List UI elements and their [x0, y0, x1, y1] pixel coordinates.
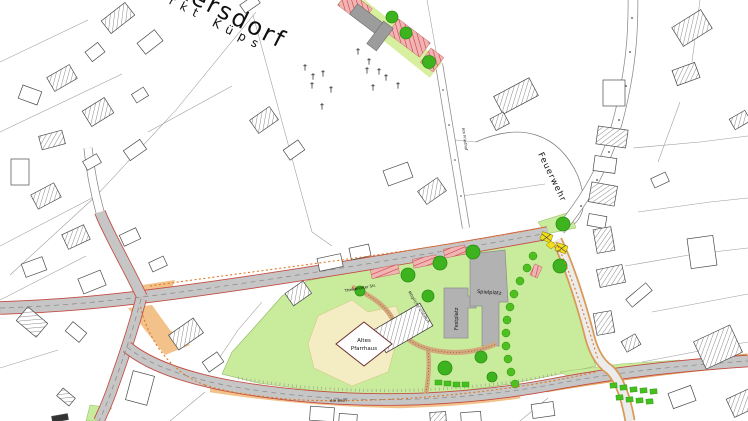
festplatz-label: Festplatz [454, 307, 460, 330]
building [125, 371, 154, 406]
bush-symbol [646, 399, 653, 405]
tree-symbol [422, 290, 434, 302]
building [131, 87, 148, 103]
grave-cross-symbol: † [303, 63, 307, 72]
building [593, 227, 615, 254]
hedge-symbol [504, 355, 512, 363]
tree-symbol [556, 217, 570, 231]
grave-cross-symbol: † [377, 67, 381, 76]
feuerwehr-label: Feuerwehr [535, 151, 568, 204]
site-plan-svg: † † † † † † † † † † † † † Burkersdorf Ma… [0, 0, 748, 421]
building [137, 30, 163, 55]
grave-cross-symbol: † [356, 47, 360, 56]
building [531, 402, 555, 419]
bush-symbol [444, 381, 451, 386]
building [62, 225, 91, 250]
building [603, 80, 625, 106]
altes-pfarrhaus-label-line2: Pfarrhaus [351, 346, 377, 352]
tree-symbol [475, 351, 487, 363]
grave-cross-symbol: † [396, 81, 400, 90]
bush-symbol [636, 398, 643, 404]
hedge-symbol [516, 277, 524, 285]
tree-symbol [466, 245, 480, 259]
tree-symbol [433, 256, 447, 270]
hedge-symbol [507, 368, 515, 376]
grave-cross-symbol: † [329, 85, 333, 94]
building [593, 311, 615, 336]
building [101, 2, 134, 33]
hedge-symbol [502, 329, 510, 337]
building [65, 322, 87, 343]
bush-symbol [630, 387, 637, 393]
grave-cross-symbol: † [320, 102, 324, 111]
building [11, 159, 29, 185]
building [490, 112, 509, 131]
hedge-symbol [506, 303, 514, 311]
building [57, 388, 76, 406]
tree-symbol [553, 259, 567, 273]
building [668, 385, 696, 408]
building [587, 214, 607, 229]
building [310, 406, 335, 421]
building [82, 97, 114, 126]
road-cemetery-access [439, 64, 466, 228]
hedge-symbol [529, 252, 537, 260]
building [672, 62, 700, 85]
building [687, 235, 717, 268]
grave-cross-symbol: † [365, 66, 369, 75]
building [621, 334, 641, 352]
grave-cross-symbol: † [311, 72, 315, 81]
building [31, 183, 61, 209]
bush-symbol [620, 385, 627, 391]
grave-cross-symbol: † [367, 57, 371, 66]
hedge-symbol [502, 342, 510, 350]
building [672, 10, 712, 47]
building [596, 264, 625, 287]
cemetery-road-label: Am Friedhof [461, 127, 469, 151]
building [588, 182, 617, 206]
building [339, 413, 358, 421]
building [494, 78, 539, 114]
building [149, 256, 168, 272]
building [250, 107, 279, 134]
grave-cross-symbol: † [310, 81, 314, 90]
building [39, 130, 66, 150]
tree-symbol [400, 27, 412, 39]
hedge-symbol [503, 316, 511, 324]
building [383, 162, 413, 186]
am-bach-label: Am Bach [330, 397, 348, 403]
building [651, 172, 670, 188]
tree-symbol [487, 372, 497, 382]
road-north-branch [100, 212, 142, 297]
tree-symbol [386, 11, 398, 23]
bush-symbol [626, 397, 633, 403]
building [123, 139, 146, 160]
building [626, 283, 652, 307]
building [593, 156, 617, 174]
building [283, 140, 305, 160]
bush-symbol [610, 383, 617, 389]
grave-cross-symbol: † [384, 73, 388, 82]
bush-symbol [462, 382, 469, 387]
building [21, 257, 46, 278]
bush-symbol [453, 382, 460, 387]
bush-symbol [435, 380, 442, 385]
tree-symbol [401, 268, 415, 282]
bush-symbol [650, 389, 657, 395]
site-plan-map: † † † † † † † † † † † † † Burkersdorf Ma… [0, 0, 748, 421]
building [726, 387, 748, 418]
tree-symbol [423, 56, 436, 69]
hedge-symbol [510, 290, 518, 298]
grave-cross-symbol: † [321, 69, 325, 78]
building [18, 85, 42, 105]
building [729, 110, 748, 129]
grave-cross-symbol: † [371, 83, 375, 92]
building [202, 352, 224, 372]
cemetery-crosses: † † † † † † † † † † † † † [303, 47, 400, 111]
building [430, 411, 447, 421]
building [119, 228, 140, 246]
building [596, 126, 628, 148]
tree-symbol [438, 361, 452, 375]
building [47, 65, 78, 92]
altes-pfarrhaus-label-line1: Altes [357, 338, 371, 344]
building [78, 270, 106, 294]
bush-symbol [616, 395, 623, 401]
building [85, 42, 105, 61]
building [52, 414, 69, 421]
building [461, 411, 482, 421]
hedge-symbol [523, 264, 531, 272]
building [418, 178, 447, 205]
bush-symbol [640, 388, 647, 394]
